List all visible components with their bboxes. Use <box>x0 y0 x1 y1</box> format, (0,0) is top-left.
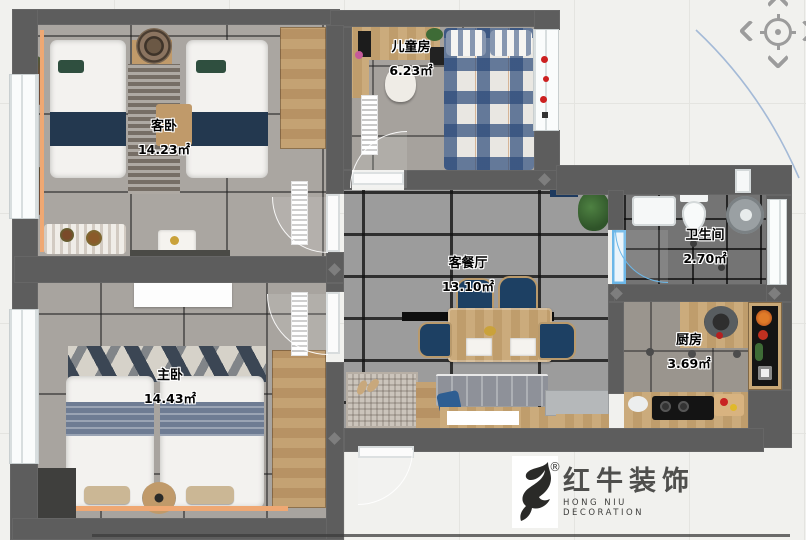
room-label-living-dining: 客餐厅 13.10㎡ <box>442 256 494 295</box>
window-left-lower <box>10 310 38 463</box>
fridge-food-greens <box>755 343 763 361</box>
wall-kitchen-right <box>782 302 792 390</box>
dimension-line <box>92 534 790 537</box>
master-wardrobe <box>272 350 326 508</box>
fridge-food-oranges <box>756 310 772 326</box>
master-pillow-right <box>186 486 234 504</box>
master-blanket-left <box>66 402 154 436</box>
room-label-kitchen: 厨房 3.69㎡ <box>667 333 710 372</box>
floorplan-canvas: 客卧 14.23㎡ 儿童房 6.23㎡ 客餐厅 13.10㎡ 卫生间 2.70㎡… <box>0 0 806 540</box>
room-name: 卫生间 <box>683 228 726 244</box>
master-tv-unit <box>134 283 232 307</box>
guest-bed-runner-right <box>186 112 268 146</box>
chevron-left-icon[interactable] <box>739 20 762 43</box>
room-area: 14.23㎡ <box>138 139 190 158</box>
crosshair-tick-bottom <box>777 45 780 50</box>
room-area: 2.70㎡ <box>683 248 726 267</box>
room-label-bathroom: 卫生间 2.70㎡ <box>683 228 726 267</box>
dining-placemat-2 <box>510 338 536 356</box>
room-area: 13.10㎡ <box>442 276 494 295</box>
living-doormat <box>346 372 418 428</box>
living-plant <box>578 191 610 231</box>
kitchen-floor-dot-1 <box>646 348 654 356</box>
logo-title-en: HONG NIU DECORATION <box>563 498 695 518</box>
guest-side-table-item <box>170 236 179 245</box>
wall-bathroom-top <box>556 165 792 195</box>
children-pillow-1 <box>446 30 486 56</box>
cutting-board-tomato <box>720 398 728 406</box>
bay-deco-red-2 <box>543 76 549 82</box>
kitchen-floor-dot-3 <box>733 350 741 358</box>
master-door-leaf <box>326 292 340 354</box>
pan-control <box>736 0 806 72</box>
guest-bed-runner-left <box>50 112 126 146</box>
master-curtain <box>76 506 288 511</box>
children-toy <box>355 51 363 59</box>
wall-children-top <box>330 10 556 27</box>
wall-kitchen-left <box>608 302 624 394</box>
cooktop-burner-1 <box>660 401 671 412</box>
wall-hall-upper <box>326 25 344 194</box>
guest-bench-flower-1 <box>60 228 74 242</box>
cutting-board-lemon <box>730 404 737 411</box>
kitchen-sink-dot <box>716 332 723 339</box>
room-name: 客卧 <box>138 119 190 135</box>
room-area: 14.43㎡ <box>144 388 196 407</box>
room-name: 客餐厅 <box>442 256 494 272</box>
guest-pillow-left <box>58 60 84 73</box>
wall-guest-top <box>14 9 340 25</box>
room-area: 6.23㎡ <box>389 60 432 79</box>
logo-title-cn: 红牛装饰 <box>563 468 695 495</box>
fridge-badge <box>758 366 772 380</box>
dining-chair-bottom-right <box>538 322 576 360</box>
guest-curtain <box>40 30 44 252</box>
master-pillow-left <box>84 486 130 504</box>
window-bathroom-top <box>735 169 751 193</box>
guest-round-rug <box>136 28 172 64</box>
kitchen-bowl <box>628 396 648 412</box>
bay-deco-red-1 <box>541 56 548 63</box>
console-white-box <box>447 411 519 425</box>
room-label-guest-bedroom: 客卧 14.23㎡ <box>138 119 190 158</box>
wall-left-top <box>12 9 38 77</box>
guest-pillow-right <box>196 60 226 73</box>
kitchen-cutting-board <box>714 394 744 416</box>
window-left-upper <box>10 75 38 218</box>
guest-door-leaf <box>326 194 340 252</box>
bathroom-sink <box>632 196 676 226</box>
wall-hall-below-divider <box>326 283 344 292</box>
chevron-down-icon[interactable] <box>767 47 790 70</box>
dining-placemat-1 <box>466 338 492 356</box>
master-blanket-right <box>160 402 264 436</box>
crosshair-center-dot <box>775 29 781 35</box>
room-name: 厨房 <box>667 333 710 349</box>
room-area: 3.69㎡ <box>667 353 710 372</box>
room-label-master-bedroom: 主卧 14.43㎡ <box>144 368 196 407</box>
bay-deco-red-3 <box>540 96 547 103</box>
logo-text-block: 红牛装饰 HONG NIU DECORATION <box>563 468 695 518</box>
bay-deco-dark <box>542 112 548 118</box>
guest-wardrobe <box>280 27 326 149</box>
wall-children-bottom-right <box>404 170 558 190</box>
wall-living-right-upper <box>608 190 624 230</box>
registered-mark: ® <box>549 460 561 474</box>
living-sideboard <box>545 390 609 416</box>
crosshair-tick-left <box>760 31 765 34</box>
crosshair-tick-right <box>791 31 796 34</box>
crosshair-target-icon[interactable] <box>764 18 792 46</box>
dining-centerpiece <box>484 326 496 336</box>
fridge-food-apple <box>758 330 768 340</box>
bathroom-shower-head <box>740 209 752 221</box>
wall-mid-divider <box>14 256 340 283</box>
children-pillow-2 <box>490 30 532 56</box>
guest-bench <box>44 224 126 254</box>
dining-chair-bottom-left <box>418 322 452 358</box>
room-name: 儿童房 <box>389 40 432 56</box>
wall-children-right-upper <box>534 10 560 30</box>
crosshair-tick-top <box>777 14 780 19</box>
living-sideboard-front <box>556 414 609 429</box>
room-name: 主卧 <box>144 368 196 384</box>
wall-hall-lower <box>326 362 344 540</box>
window-bathroom-right <box>768 200 786 284</box>
guest-bench-flower-2 <box>86 230 102 246</box>
room-label-children-room: 儿童房 6.23㎡ <box>389 40 432 79</box>
hongniu-logo: ® 红牛装饰 HONG NIU DECORATION <box>505 452 695 532</box>
cooktop-burner-2 <box>678 401 689 412</box>
dining-table <box>448 308 552 362</box>
